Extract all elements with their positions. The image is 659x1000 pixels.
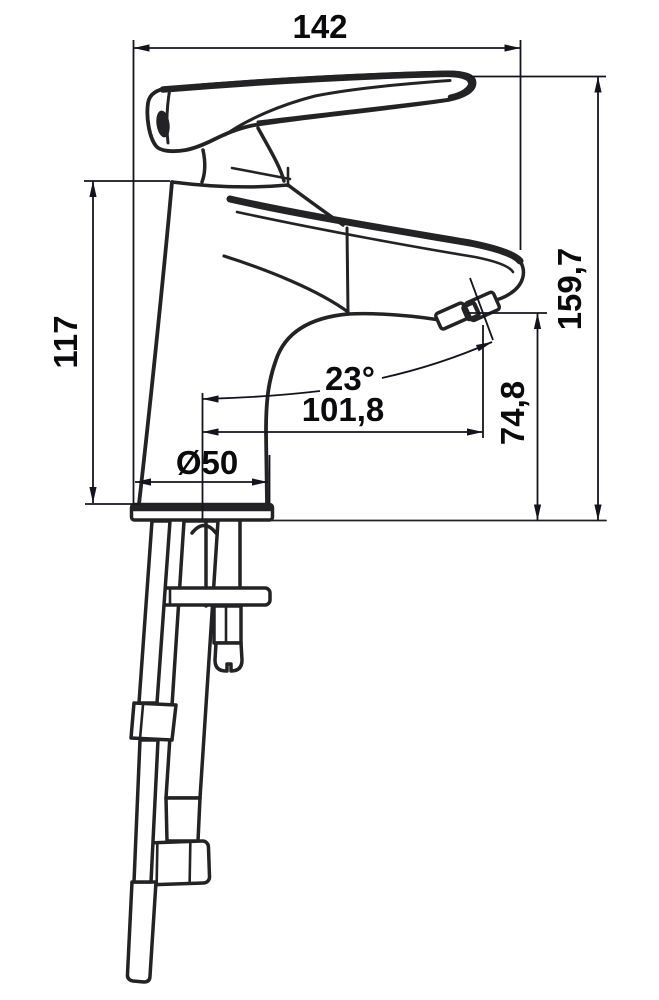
spout-top-edge — [230, 199, 520, 261]
arrowhead — [505, 44, 521, 51]
dim-label-diameter-50: Ø50 — [176, 444, 238, 481]
stud-clip-end — [215, 643, 242, 671]
stud-nut — [214, 606, 241, 643]
arrowhead — [476, 342, 492, 351]
spout-joint-line — [347, 228, 348, 313]
aerator-inner — [464, 291, 500, 321]
faucet-technical-drawing: 142 159,7 117 74,8 — [0, 0, 659, 1000]
arrowhead — [203, 395, 219, 402]
arrowhead — [534, 313, 541, 329]
dim-label-142: 142 — [292, 8, 347, 45]
dim-label-23deg: 23° — [325, 360, 375, 397]
arrowhead — [594, 77, 601, 93]
arrowhead — [89, 181, 96, 197]
arrowhead — [134, 44, 150, 51]
supply-hose-left-upper — [139, 521, 170, 703]
hose-union-block — [131, 703, 176, 740]
body-left-edge — [139, 182, 172, 504]
drawing-page: 142 159,7 117 74,8 — [0, 0, 659, 1000]
dim-label-117: 117 — [47, 315, 84, 368]
faucet-drawing — [127, 72, 606, 982]
body-seam-line — [224, 256, 348, 312]
hose-end-fitting — [127, 882, 156, 982]
dim-label-159-7: 159,7 — [551, 248, 588, 331]
supply-hose-rear — [166, 521, 218, 798]
arrowhead — [467, 428, 483, 435]
spout-underside — [348, 314, 440, 320]
mounting-washer — [158, 588, 270, 605]
arrowhead — [594, 505, 601, 521]
neck-left-line — [202, 150, 205, 182]
hose-connector — [166, 798, 200, 841]
dim-spout-reach: 101,8 — [203, 325, 484, 520]
body-top-edge — [172, 182, 288, 187]
dim-outlet-height: 74,8 — [468, 313, 547, 521]
aerator-inner-box — [464, 291, 500, 321]
angle-arc — [382, 342, 492, 378]
arrowhead — [534, 505, 541, 521]
dim-label-74-8: 74,8 — [494, 381, 531, 445]
arrowhead — [203, 428, 219, 435]
arrowhead — [89, 487, 96, 503]
dim-body-height: 117 — [47, 181, 170, 504]
